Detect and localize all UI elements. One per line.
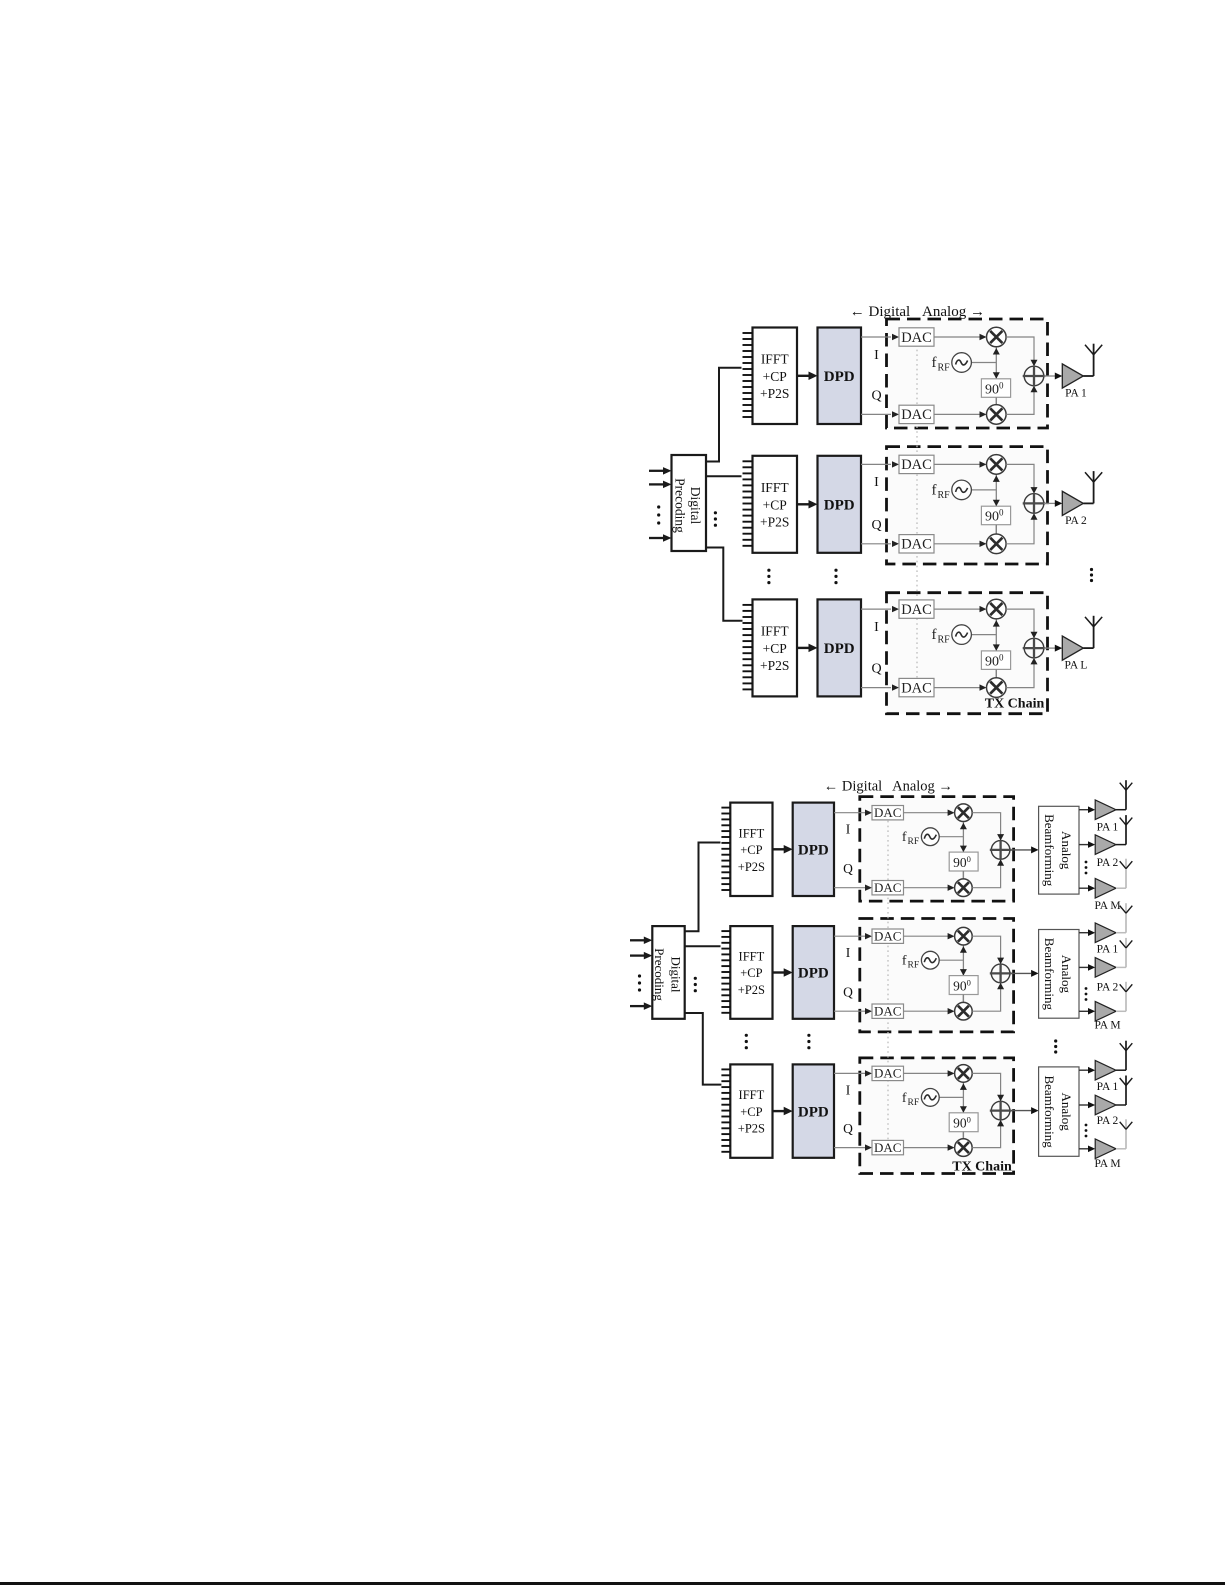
svg-text:Analog: Analog: [1059, 1092, 1074, 1131]
svg-text:IFFT: IFFT: [739, 1088, 765, 1102]
svg-text:RF: RF: [908, 1098, 920, 1108]
svg-text:+CP: +CP: [740, 843, 762, 857]
svg-text:RF: RF: [938, 635, 951, 646]
svg-text:f: f: [932, 627, 937, 643]
svg-text:+P2S: +P2S: [760, 386, 789, 401]
svg-text:PA 1: PA 1: [1097, 1081, 1119, 1093]
svg-text:RF: RF: [938, 490, 951, 501]
svg-text:I: I: [846, 1082, 851, 1097]
svg-text:Q: Q: [871, 662, 881, 677]
svg-text:I: I: [846, 945, 851, 960]
svg-text:Digital: Digital: [688, 487, 703, 525]
svg-text:Precoding: Precoding: [673, 478, 688, 533]
svg-text:PA 2: PA 2: [1097, 1115, 1119, 1127]
svg-text:TX Chain: TX Chain: [985, 697, 1045, 712]
svg-text:DAC: DAC: [901, 407, 932, 423]
svg-text:+P2S: +P2S: [760, 515, 789, 530]
svg-text:+CP: +CP: [740, 1105, 762, 1119]
svg-text:PA 1: PA 1: [1065, 388, 1087, 400]
svg-text:Precoding: Precoding: [652, 948, 667, 1001]
svg-text:DAC: DAC: [874, 1140, 901, 1155]
svg-text:DPD: DPD: [798, 966, 829, 982]
svg-text:DAC: DAC: [901, 330, 932, 346]
svg-text:IFFT: IFFT: [761, 480, 790, 495]
svg-text:f: f: [932, 355, 937, 371]
svg-text:f: f: [932, 482, 937, 498]
svg-text:DAC: DAC: [874, 805, 901, 820]
svg-text:f: f: [902, 1091, 907, 1106]
svg-text:PA M: PA M: [1094, 1158, 1120, 1170]
svg-text:DPD: DPD: [824, 369, 855, 385]
svg-text:I: I: [874, 348, 879, 363]
svg-text:Beamforming: Beamforming: [1042, 938, 1057, 1011]
svg-text:I: I: [874, 475, 879, 490]
svg-text:← Digital: ← Digital: [824, 779, 882, 795]
svg-text:Q: Q: [843, 985, 853, 1000]
svg-text:+P2S: +P2S: [738, 860, 765, 874]
svg-text:+CP: +CP: [763, 641, 787, 656]
svg-text:DAC: DAC: [901, 680, 932, 696]
svg-text:Q: Q: [871, 388, 881, 403]
svg-text:IFFT: IFFT: [739, 950, 765, 964]
svg-text:IFFT: IFFT: [761, 351, 790, 366]
svg-text:I: I: [846, 822, 851, 837]
svg-text:RF: RF: [908, 837, 920, 847]
svg-text:PA 2: PA 2: [1097, 857, 1119, 869]
svg-text:DPD: DPD: [798, 843, 829, 859]
svg-text:DAC: DAC: [874, 928, 901, 943]
svg-text:DAC: DAC: [901, 537, 932, 553]
svg-text:+CP: +CP: [763, 497, 787, 512]
svg-text:DAC: DAC: [901, 457, 932, 473]
svg-text:DAC: DAC: [874, 880, 901, 895]
svg-text:PA 2: PA 2: [1097, 981, 1119, 993]
svg-text:Q: Q: [843, 861, 853, 876]
svg-text:DAC: DAC: [874, 1003, 901, 1018]
svg-text:RF: RF: [938, 363, 951, 374]
svg-text:Q: Q: [871, 518, 881, 533]
svg-text:PA 2: PA 2: [1065, 515, 1087, 527]
svg-text:f: f: [902, 954, 907, 969]
svg-text:Analog: Analog: [1059, 831, 1074, 870]
svg-text:TX Chain: TX Chain: [952, 1160, 1012, 1175]
svg-text:DPD: DPD: [798, 1104, 829, 1120]
svg-text:IFFT: IFFT: [761, 624, 790, 639]
svg-text:Analog: Analog: [1059, 955, 1074, 994]
svg-text:Q: Q: [843, 1121, 853, 1136]
svg-text:PA 1: PA 1: [1097, 822, 1119, 834]
svg-text:+P2S: +P2S: [738, 983, 765, 997]
svg-text:PA L: PA L: [1065, 660, 1088, 672]
svg-text:+P2S: +P2S: [738, 1122, 765, 1136]
svg-text:Beamforming: Beamforming: [1042, 814, 1057, 887]
svg-text:PA M: PA M: [1094, 900, 1120, 912]
svg-text:RF: RF: [908, 961, 920, 971]
svg-text:← Digital: ← Digital: [850, 304, 910, 320]
svg-text:PA 1: PA 1: [1097, 943, 1119, 955]
svg-text:+CP: +CP: [763, 369, 787, 384]
svg-text:PA M: PA M: [1094, 1019, 1120, 1031]
svg-text:Analog →: Analog →: [892, 779, 953, 795]
svg-text:I: I: [874, 620, 879, 635]
svg-text:DPD: DPD: [824, 641, 855, 657]
svg-text:Digital: Digital: [669, 956, 684, 992]
svg-text:DAC: DAC: [901, 602, 932, 618]
svg-text:+P2S: +P2S: [760, 658, 789, 673]
svg-text:Beamforming: Beamforming: [1042, 1075, 1057, 1148]
svg-text:DPD: DPD: [824, 498, 855, 514]
svg-text:IFFT: IFFT: [739, 826, 765, 840]
svg-text:f: f: [902, 830, 907, 845]
svg-text:DAC: DAC: [874, 1066, 901, 1081]
svg-text:+CP: +CP: [740, 966, 762, 980]
